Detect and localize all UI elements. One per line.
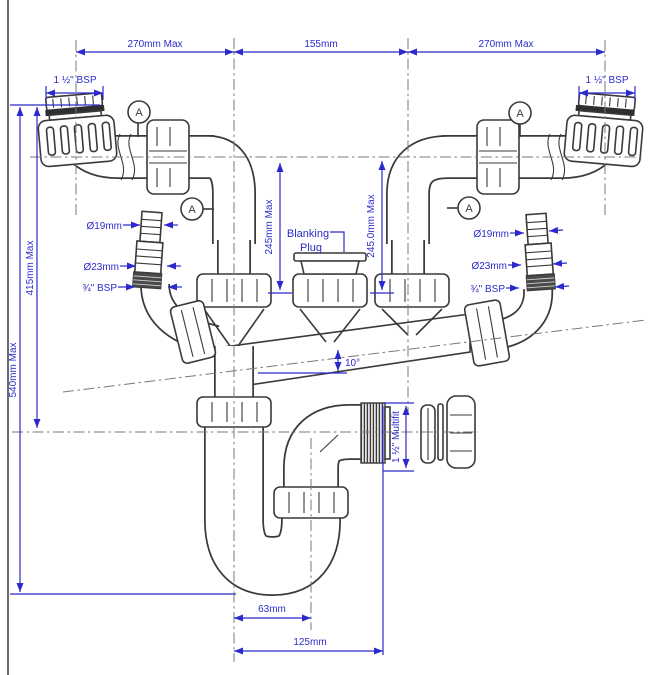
left-hose-union-nut xyxy=(169,300,216,365)
left-tailpiece xyxy=(36,92,118,167)
dim-245-left: 245mm Max xyxy=(264,199,275,254)
section-marker-a2: A xyxy=(188,204,196,216)
dim-540: 540mm Max xyxy=(8,342,19,397)
left-hose-connector xyxy=(133,211,166,289)
blanking-plug-label-1: Blanking xyxy=(287,228,329,240)
outlet-thread xyxy=(361,403,385,463)
dim-multifit: 1 ½" Multifit xyxy=(391,411,402,463)
manifold-right-nut xyxy=(375,274,449,307)
blanking-plug-label-2: Plug xyxy=(300,242,322,254)
dim-125: 125mm xyxy=(293,637,326,648)
right-tailpiece xyxy=(564,92,646,167)
dim-bsp-right: 1 ½" BSP xyxy=(585,75,628,86)
dim-top-left: 270mm Max xyxy=(127,39,182,50)
dim-bsp-left: 1 ½" BSP xyxy=(53,75,96,86)
label-right-d23: Ø23mm xyxy=(471,261,507,272)
label-right-d19: Ø19mm xyxy=(473,229,509,240)
blanking-plug xyxy=(294,253,366,274)
dim-top-right: 270mm Max xyxy=(478,39,533,50)
label-left-d19: Ø19mm xyxy=(86,221,122,232)
section-marker-a4: A xyxy=(465,203,473,215)
right-hose-connector xyxy=(522,213,555,291)
label-left-bsp34: ¾" BSP xyxy=(82,283,117,294)
manifold-body xyxy=(216,314,470,390)
dim-63: 63mm xyxy=(258,604,286,615)
manifold-center-nut xyxy=(293,274,367,307)
label-left-d23: Ø23mm xyxy=(83,262,119,273)
label-right-bsp34: ¾" BSP xyxy=(470,284,505,295)
dim-415: 415mm Max xyxy=(25,240,36,295)
dim-top-center: 155mm xyxy=(304,39,337,50)
technical-drawing-page: A A A A 270mm Max 155mm 270mm Max 1 ½" B… xyxy=(0,0,649,675)
right-hose-union-nut xyxy=(464,299,510,366)
dim-245-right: 245.0mm Max xyxy=(366,194,377,257)
dim-fall-angle: 10° xyxy=(345,358,360,369)
section-marker-a1: A xyxy=(135,107,143,119)
sink-trap-diagram: A A A A 270mm Max 155mm 270mm Max 1 ½" B… xyxy=(0,0,649,675)
section-marker-a3: A xyxy=(516,108,524,120)
